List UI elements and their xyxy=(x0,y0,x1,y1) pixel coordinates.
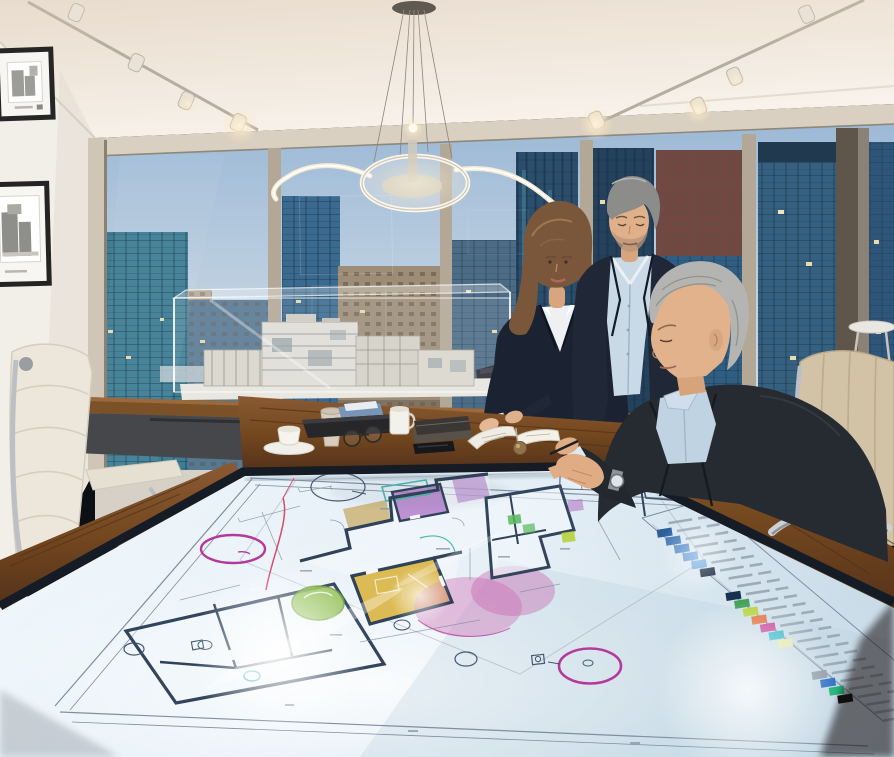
architecture-model xyxy=(174,284,510,400)
plan-purple-square xyxy=(567,499,583,512)
chandelier-bulb xyxy=(409,124,418,133)
plan-lime-square xyxy=(561,531,575,543)
woman-neck xyxy=(549,286,565,308)
framed-architectural-drawing-2 xyxy=(0,183,49,284)
plan-green-square-1 xyxy=(508,514,522,525)
office-photo-scene xyxy=(0,0,894,757)
plan-green-square-2 xyxy=(523,523,536,534)
framed-architectural-drawing-1 xyxy=(0,49,53,119)
brass-paperweight xyxy=(514,442,527,455)
model-display-case xyxy=(174,284,510,392)
